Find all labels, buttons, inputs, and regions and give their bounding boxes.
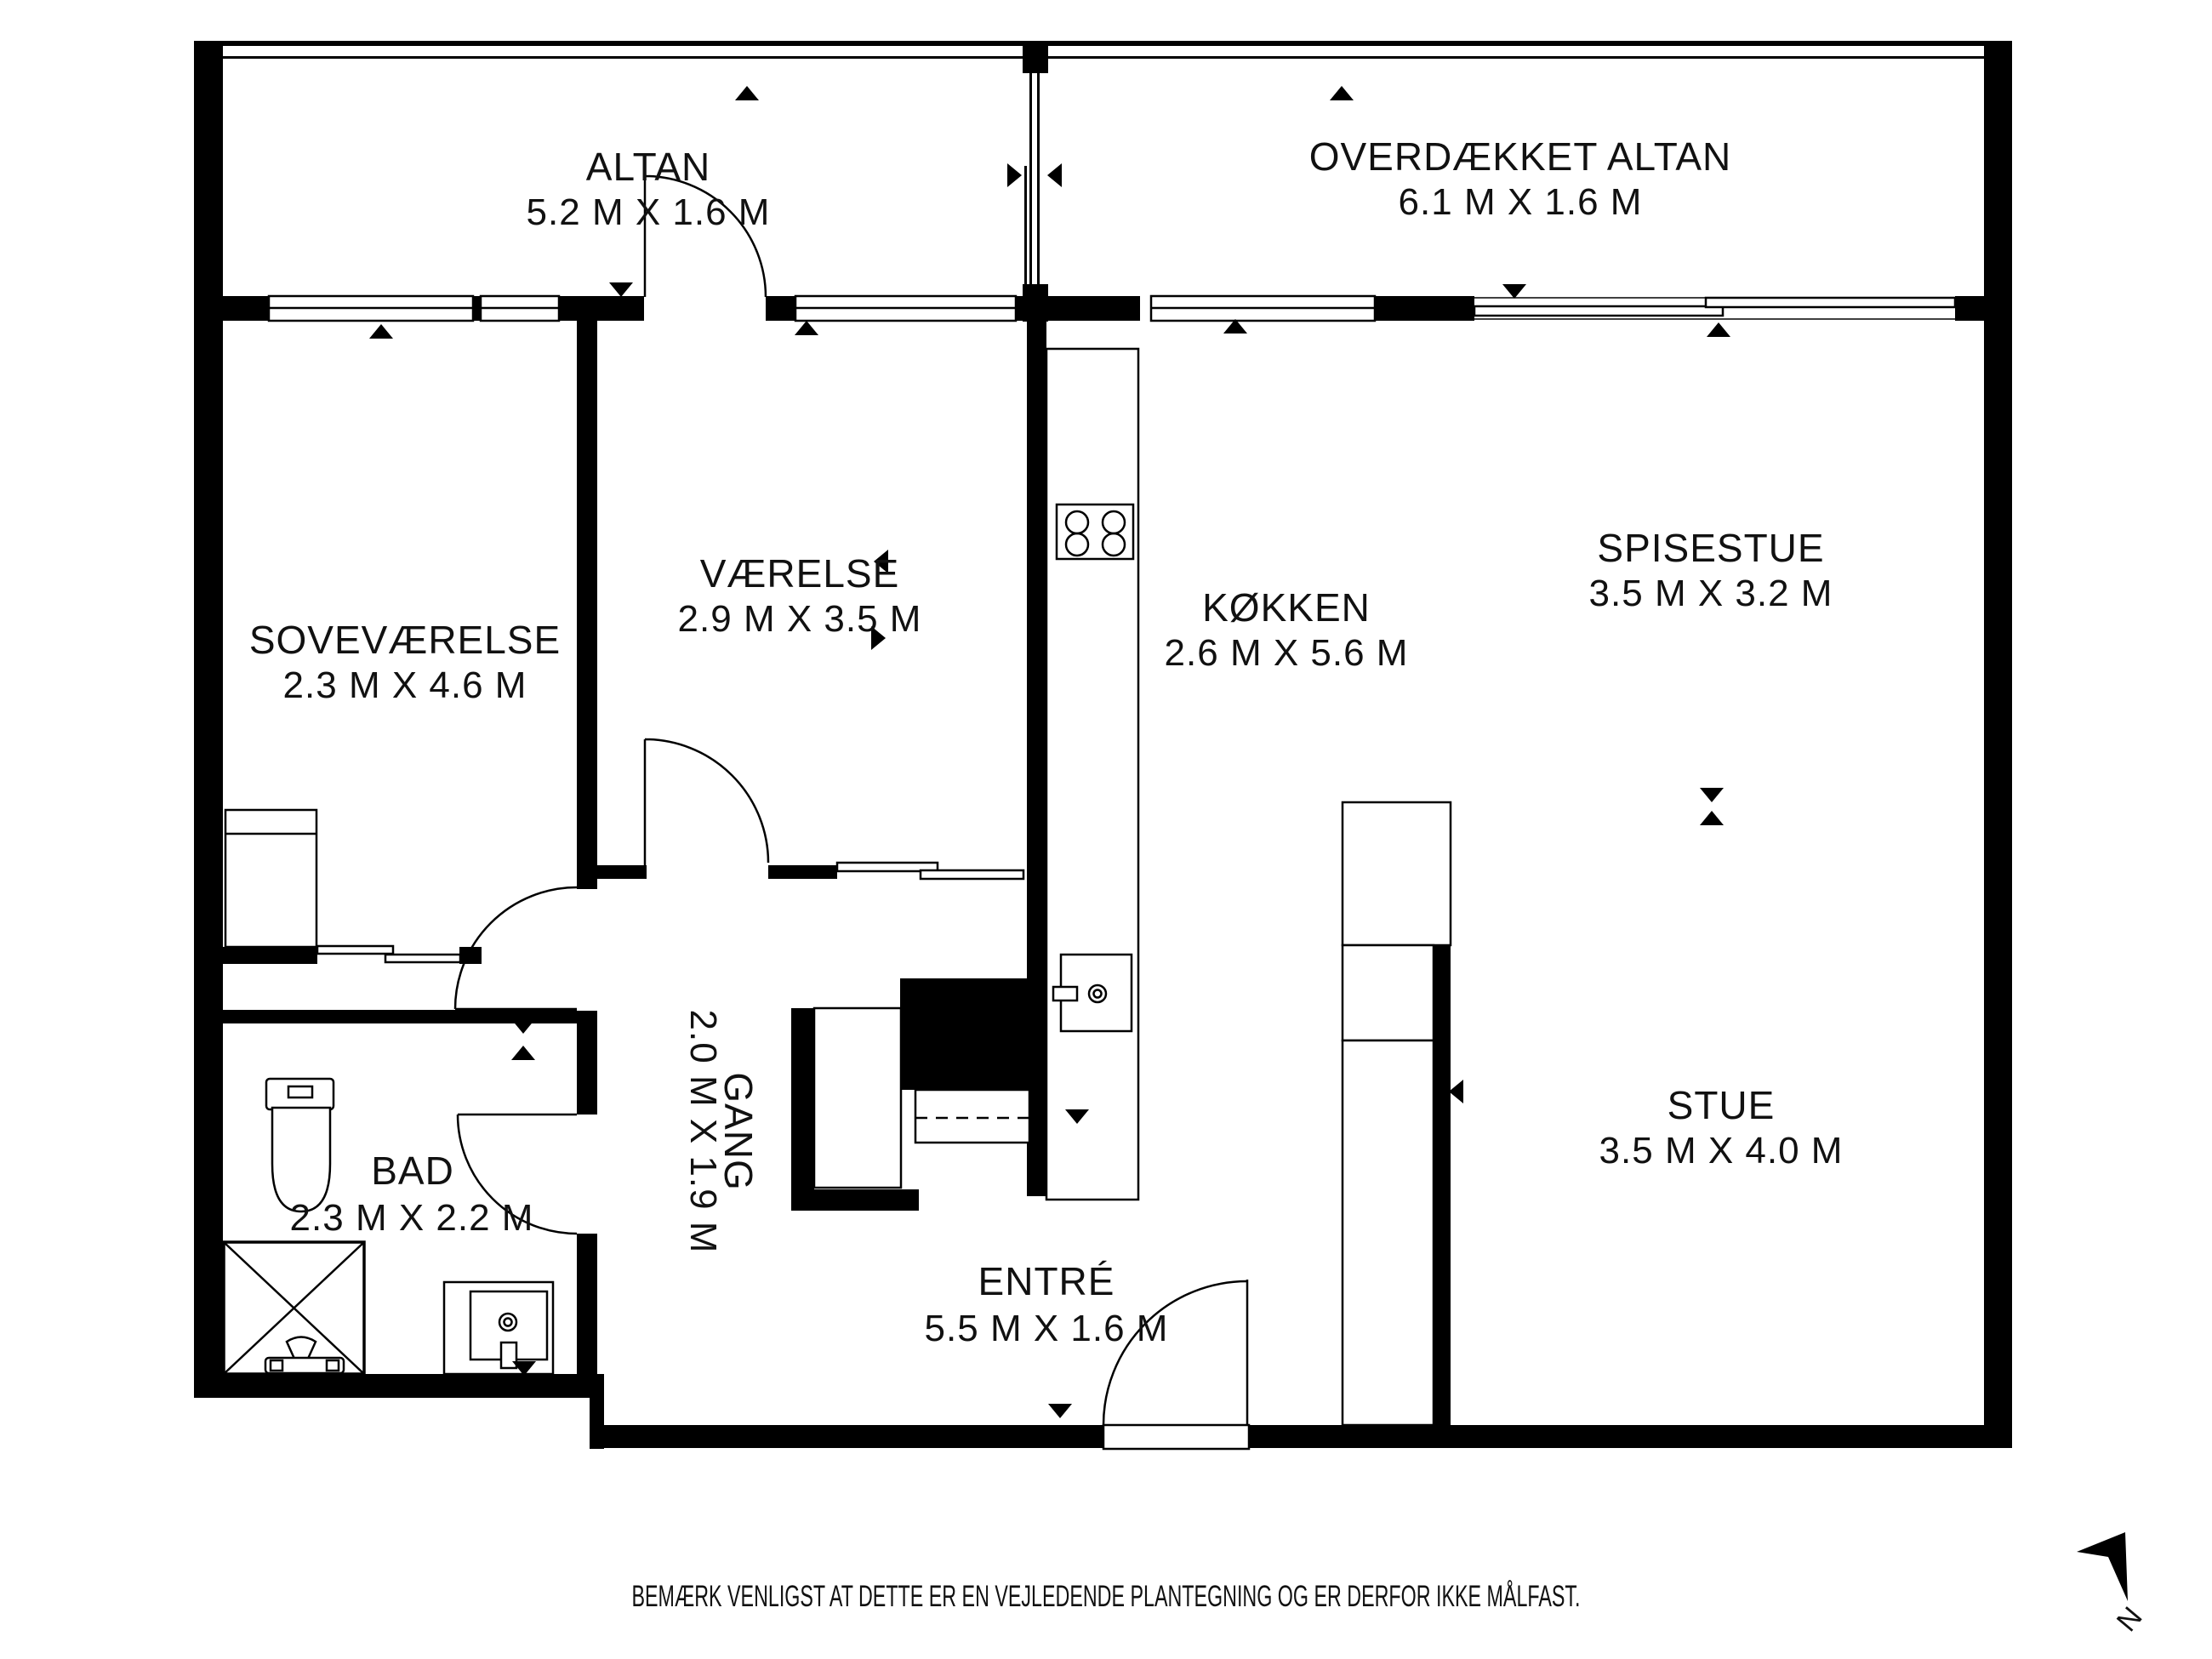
floor-plan-page: ALTAN 5.2 M X 1.6 M OVERDÆKKET ALTAN 6.1… [0, 0, 2212, 1659]
stue-cabinet-mid [1343, 945, 1434, 1040]
room-label-altan: ALTAN [586, 145, 710, 189]
room-dims-overdaekket-altan: 6.1 M X 1.6 M [1399, 181, 1643, 223]
room-label-vaerelse: VÆRELSE [700, 551, 900, 596]
shower-icon [224, 1242, 364, 1374]
altan-door-opening [644, 297, 766, 320]
kitchen-sink-icon [1053, 955, 1132, 1031]
disclaimer-text: BEMÆRK VENLIGST AT DETTE ER EN VEJLEDEND… [632, 1580, 1581, 1613]
room-dims-entre: 5.5 M X 1.6 M [925, 1308, 1169, 1349]
room-dims-bad: 2.3 M X 2.2 M [290, 1197, 534, 1239]
room-dims-sovevaerelse: 2.3 M X 4.6 M [283, 664, 527, 706]
stove-icon [1057, 505, 1133, 559]
stue-cabinet-top [1343, 802, 1451, 945]
room-dims-altan: 5.2 M X 1.6 M [527, 191, 771, 233]
north-label: N [2111, 1601, 2149, 1638]
room-dims-vaerelse: 2.9 M X 3.5 M [678, 598, 922, 640]
room-label-sovevaerelse: SOVEVÆRELSE [249, 618, 561, 662]
floor-plan: ALTAN 5.2 M X 1.6 M OVERDÆKKET ALTAN 6.1… [0, 0, 2212, 1659]
room-label-bad: BAD [371, 1149, 454, 1193]
entre-closet [915, 1090, 1029, 1143]
room-dims-stue: 3.5 M X 4.0 M [1599, 1130, 1844, 1172]
room-dims-koekken: 2.6 M X 5.6 M [1165, 632, 1409, 674]
fixtures [224, 349, 1451, 1425]
north-arrow-icon: N [2077, 1532, 2149, 1638]
room-dims-gang: 2.0 M X 1.9 M [682, 1010, 724, 1254]
room-label-overdaekket-altan: OVERDÆKKET ALTAN [1309, 134, 1732, 179]
vaerelse-door-arc [645, 739, 768, 863]
room-label-entre: ENTRÉ [978, 1259, 1115, 1303]
washbasin-icon [444, 1282, 553, 1374]
bedroom-wardrobe [225, 810, 316, 947]
room-dims-spisestue: 3.5 M X 3.2 M [1589, 573, 1833, 614]
room-label-stue: STUE [1668, 1083, 1776, 1127]
room-label-koekken: KØKKEN [1202, 585, 1371, 630]
room-label-spisestue: SPISESTUE [1597, 526, 1824, 570]
entrance-door-arc [1103, 1281, 1247, 1425]
entrance-door-opening [1103, 1425, 1249, 1449]
stue-cabinet-bottom [1343, 1040, 1434, 1425]
sovevaerelse-door-opening [577, 889, 597, 1011]
toilet-icon [266, 1079, 334, 1211]
kitchen-counter [1046, 349, 1138, 1200]
gang-closet [814, 1008, 901, 1188]
